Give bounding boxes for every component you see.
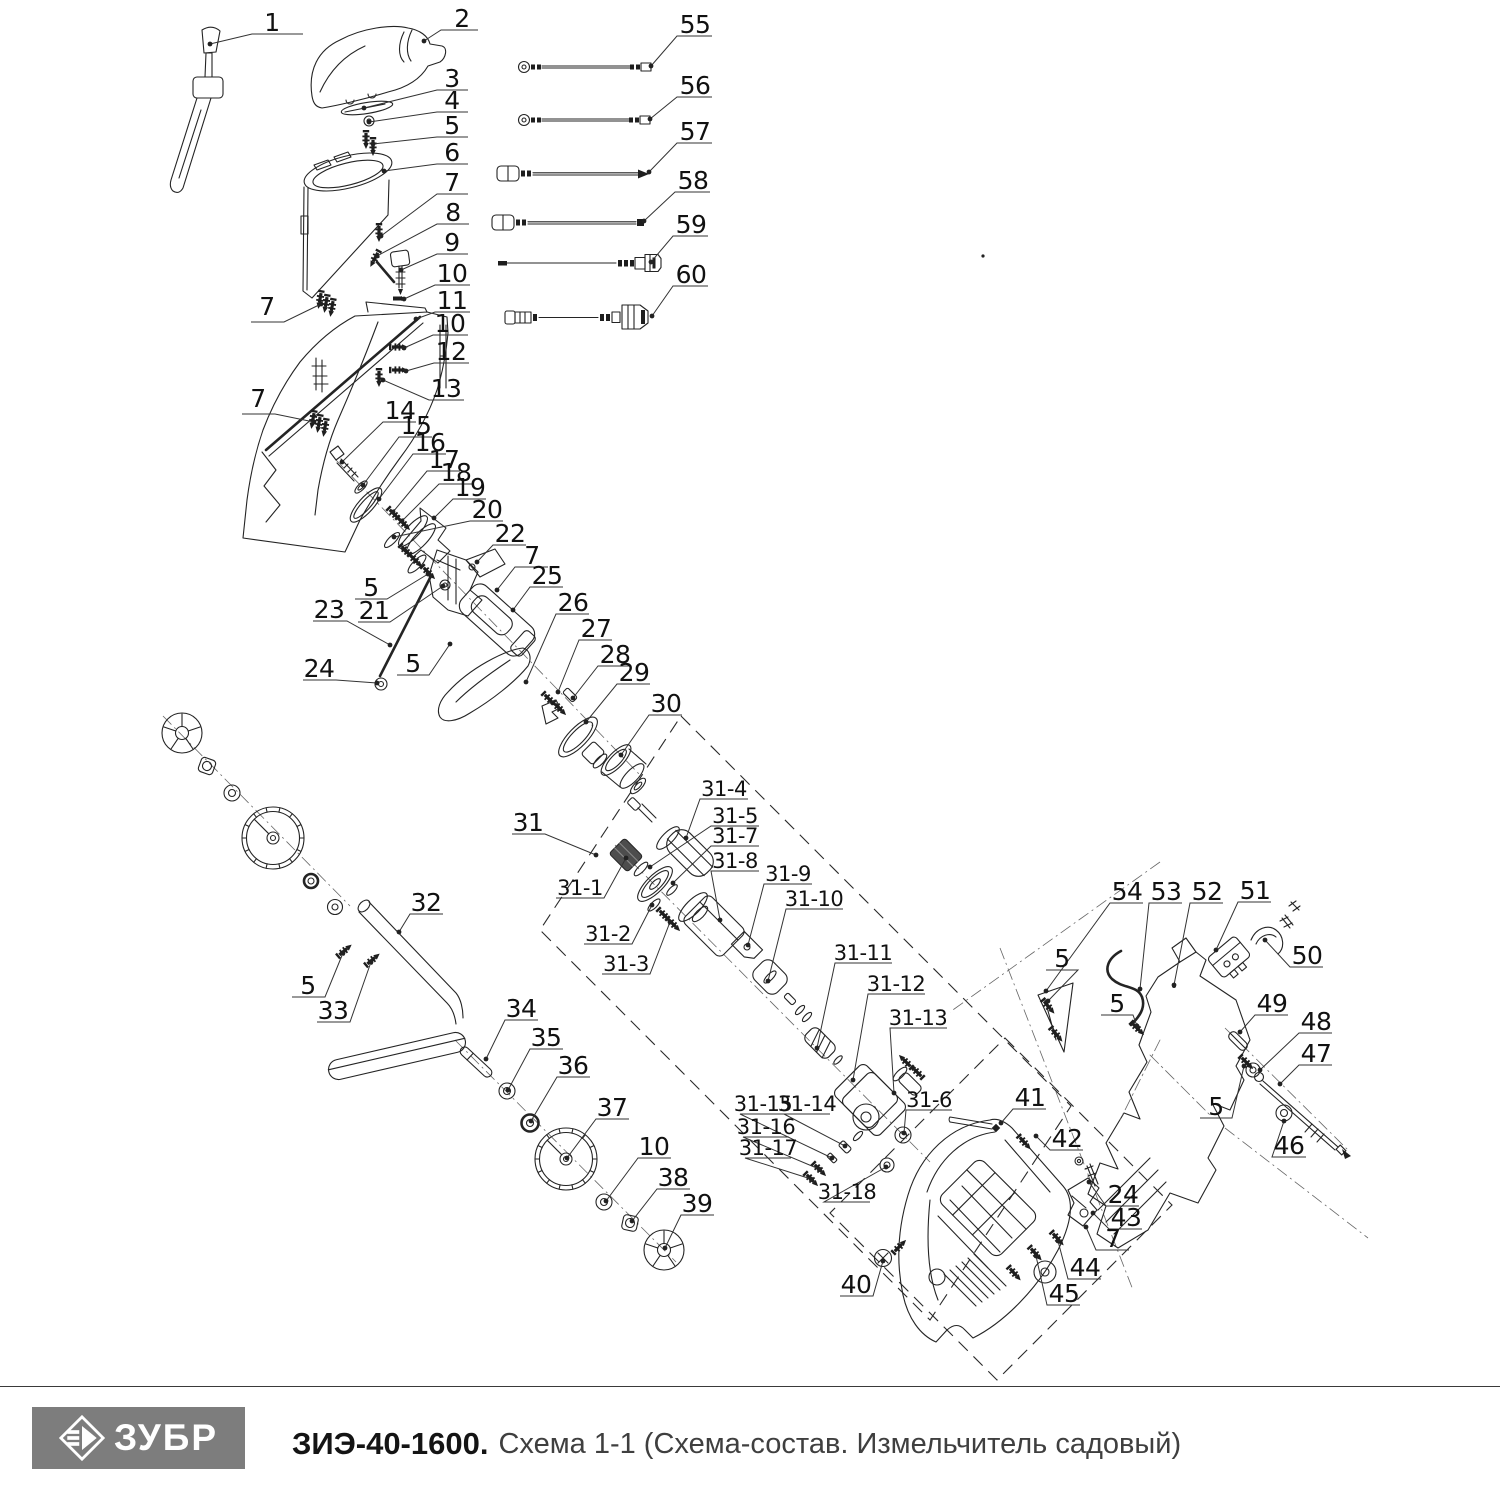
part-label-50: 50 <box>1263 938 1323 970</box>
leader-line <box>531 1077 590 1121</box>
cable-55 <box>519 62 652 73</box>
leader-line <box>904 1110 952 1133</box>
part-label-31-18: 31-18 <box>818 1165 889 1204</box>
part-number-text: 33 <box>318 996 349 1025</box>
labels-layer: 1234567891011101213775556575859601415161… <box>208 4 1332 1308</box>
cable-56 <box>519 115 651 126</box>
leader-dot <box>208 42 213 47</box>
leader-dot <box>604 1199 609 1204</box>
part-label-7: 7 <box>251 292 323 322</box>
leader-line <box>711 871 759 920</box>
leader-dot <box>565 1156 570 1161</box>
part-label-39: 39 <box>663 1189 714 1250</box>
cable-60 <box>505 305 648 329</box>
leader-dot <box>369 960 374 965</box>
part-number-text: 6 <box>444 138 459 167</box>
footer: ЗУБР ЗИЭ-40-1600. Схема 1-1 (Схема-соста… <box>0 1386 1500 1500</box>
leader-dot <box>375 681 380 686</box>
part-number-text: 30 <box>651 689 682 718</box>
part-number-text: 24 <box>304 654 335 683</box>
part-number-text: 45 <box>1049 1279 1080 1308</box>
part-number-text: 31-14 <box>778 1092 837 1116</box>
cables <box>492 62 661 330</box>
leader-dot <box>1084 1225 1089 1230</box>
leader-dot <box>663 1246 668 1251</box>
leader-dot <box>671 881 676 886</box>
leader-dot <box>506 1088 511 1093</box>
part-label-55: 55 <box>649 10 712 68</box>
part-number-text: 34 <box>506 994 537 1023</box>
leader-dot <box>448 642 453 647</box>
leader-dot <box>650 903 655 908</box>
leader-dot <box>1242 1064 1247 1069</box>
leader-dot <box>648 117 653 122</box>
leader-line <box>508 1049 563 1090</box>
leader-dot <box>382 169 387 174</box>
leader-dot <box>684 836 689 841</box>
part-label-54: 54 <box>1044 877 1143 993</box>
leader-dot <box>422 39 427 44</box>
part-number-text: 27 <box>581 614 612 643</box>
part-label-5: 5 <box>292 951 345 1000</box>
cable-59 <box>498 255 661 272</box>
leader-dot <box>475 560 480 565</box>
part-label-31-17: 31-17 <box>739 1136 814 1181</box>
part-label-31: 31 <box>512 808 598 857</box>
leader-dot <box>668 920 673 925</box>
leader-dot <box>619 753 624 758</box>
part-label-56: 56 <box>648 71 712 121</box>
leader-dot <box>881 1259 886 1264</box>
part-number-text: 5 <box>1208 1092 1223 1121</box>
part-label-31-6: 31-6 <box>902 1088 952 1135</box>
part-number-text: 31 <box>513 808 544 837</box>
leader-dot <box>642 219 647 224</box>
part-label-36: 36 <box>529 1051 590 1123</box>
leader-dot <box>367 120 372 125</box>
leader-dot <box>999 1121 1004 1126</box>
part-number-text: 44 <box>1070 1253 1101 1282</box>
part-number-text: 21 <box>359 596 390 625</box>
leader-dot <box>902 1131 907 1136</box>
part-number-text: 31-13 <box>889 1006 948 1030</box>
leader-dot <box>341 951 346 956</box>
leader-dot <box>571 696 576 701</box>
part-number-text: 29 <box>619 658 650 687</box>
motor-assembly-boundary <box>540 716 1071 1320</box>
part-label-41: 41 <box>999 1083 1046 1125</box>
leader-dot <box>1263 938 1268 943</box>
part-label-30: 30 <box>619 689 682 757</box>
part-number-text: 47 <box>1301 1039 1332 1068</box>
leader-dot <box>884 1165 889 1170</box>
leader-dot <box>718 918 723 923</box>
leader-dot <box>1046 999 1051 1004</box>
leader-line <box>621 715 682 755</box>
part-number-text: 46 <box>1274 1131 1305 1160</box>
part-number-text: 32 <box>411 888 442 917</box>
doc-title: ЗИЭ-40-1600. Схема 1-1 (Схема-состав. Из… <box>292 1387 1181 1500</box>
print-speck <box>981 254 984 257</box>
leader-dot <box>362 106 367 111</box>
part-label-46: 46 <box>1272 1119 1306 1160</box>
part-number-text: 50 <box>1292 941 1323 970</box>
leader-dot <box>851 1078 856 1083</box>
part-number-text: 12 <box>436 337 467 366</box>
part-number-text: 52 <box>1192 877 1223 906</box>
part-label-31-2: 31-2 <box>584 903 654 946</box>
leader-dot <box>649 260 654 265</box>
leader-dot <box>630 1219 635 1224</box>
leader-dot <box>1056 1239 1061 1244</box>
part-number-text: 56 <box>680 71 711 100</box>
part-number-text: 54 <box>1112 877 1143 906</box>
leader-dot <box>830 1156 835 1161</box>
part-number-text: 31-6 <box>906 1088 952 1112</box>
part-number-text: 22 <box>495 519 526 548</box>
funnel-screws <box>367 223 410 301</box>
leader-dot <box>649 64 654 69</box>
logo-text: ЗУБР <box>114 1417 218 1459</box>
leader-dot <box>529 1119 534 1124</box>
leader-dot <box>594 853 599 858</box>
part-label-2: 2 <box>422 4 478 43</box>
wheel-set-upper <box>162 713 343 915</box>
leader-dot <box>556 690 561 695</box>
leader-dot <box>511 608 516 613</box>
part-number-text: 31-11 <box>834 941 893 965</box>
part-label-12: 12 <box>404 337 469 373</box>
screws-7-upper <box>315 290 337 318</box>
part-label-31-13: 31-13 <box>889 1006 948 1095</box>
part-number-text: 10 <box>437 259 468 288</box>
leader-dot <box>1282 1119 1287 1124</box>
part-number-text: 37 <box>597 1093 628 1122</box>
leader-line <box>513 587 563 610</box>
part-label-31-10: 31-10 <box>766 887 844 983</box>
part-label-42: 42 <box>1034 1124 1083 1153</box>
leader-dot <box>766 979 771 984</box>
leader-line <box>1174 903 1223 985</box>
part-number-text: 23 <box>314 595 345 624</box>
part-funnel <box>300 146 410 301</box>
leader-line <box>210 34 303 44</box>
leader-dot <box>340 460 345 465</box>
leader-dot <box>809 1177 814 1182</box>
leader-dot <box>1278 1082 1283 1087</box>
group-boundaries <box>540 716 1368 1380</box>
part-label-5: 5 <box>397 642 452 678</box>
leader-dot <box>402 297 407 302</box>
part-pusher <box>170 27 223 192</box>
part-label-60: 60 <box>650 260 708 318</box>
part-number-text: 31-7 <box>712 824 758 848</box>
part-label-7: 7 <box>242 384 316 424</box>
leader-dot <box>624 856 629 861</box>
leader-line <box>652 286 708 316</box>
leader-dot <box>426 572 431 577</box>
part-number-text: 41 <box>1015 1083 1046 1112</box>
leader-dot <box>1091 1211 1096 1216</box>
part-number-text: 48 <box>1301 1007 1332 1036</box>
leader-dot <box>1034 1254 1039 1259</box>
part-number-text: 36 <box>558 1051 589 1080</box>
part-number-text: 38 <box>658 1163 689 1192</box>
part-top-cover <box>311 27 445 109</box>
leader-dot <box>388 643 393 648</box>
part-label-32: 32 <box>397 888 443 934</box>
part-number-text: 5 <box>405 649 420 678</box>
part-number-text: 5 <box>1054 944 1069 973</box>
part-number-text: 40 <box>841 1270 872 1299</box>
leader-line <box>512 834 596 855</box>
part-number-text: 31-2 <box>585 922 631 946</box>
cable-58 <box>492 215 644 230</box>
part-number-text: 31-10 <box>785 887 844 911</box>
leader-dot <box>381 378 386 383</box>
part-number-text: 53 <box>1151 877 1182 906</box>
part-number-text: 25 <box>532 561 563 590</box>
doc-subtitle: Схема 1-1 (Схема-состав. Измельчитель са… <box>498 1428 1181 1461</box>
leader-line <box>567 1119 629 1158</box>
part-number-text: 49 <box>1257 989 1288 1018</box>
leader-dot <box>441 584 446 589</box>
leader-line <box>651 36 712 66</box>
leader-dot <box>432 516 437 521</box>
part-number-text: 31-8 <box>712 849 758 873</box>
schematic-page: 1234567891011101213775556575859601415161… <box>0 0 1500 1500</box>
part-number-text: 10 <box>435 309 466 338</box>
part-number-text: 26 <box>558 588 589 617</box>
part-number-text: 7 <box>1105 1224 1120 1253</box>
part-label-1: 1 <box>208 8 303 46</box>
part-number-text: 58 <box>678 166 709 195</box>
leader-dot <box>319 302 324 307</box>
leader-dot <box>1172 983 1177 988</box>
part-number-text: 31-18 <box>818 1180 877 1204</box>
leader-dot <box>495 588 500 593</box>
leader-dot <box>371 142 376 147</box>
leader-line <box>1216 902 1271 950</box>
leader-dot <box>1087 1180 1092 1185</box>
exploded-parts-diagram: 1234567891011101213775556575859601415161… <box>0 0 1500 1386</box>
leader-dot <box>1135 1024 1140 1029</box>
leader-dot <box>484 1057 489 1062</box>
part-number-text: 5 <box>1109 989 1124 1018</box>
part-label-20: 20 <box>392 495 503 539</box>
part-label-59: 59 <box>649 210 708 264</box>
leader-dot <box>361 483 366 488</box>
leader-dot <box>1138 987 1143 992</box>
leader-dot <box>815 1046 820 1051</box>
part-number-text: 31-17 <box>739 1136 798 1160</box>
part-number-text: 51 <box>1240 876 1271 905</box>
leader-line <box>526 614 589 682</box>
part-label-33: 33 <box>317 960 373 1025</box>
part-number-text: 1 <box>264 8 279 37</box>
zubr-logo: ЗУБР <box>32 1407 245 1469</box>
part-label-24: 24 <box>303 654 379 685</box>
leader-dot <box>312 420 317 425</box>
part-number-text: 5 <box>300 971 315 1000</box>
part-number-text: 7 <box>250 384 265 413</box>
part-number-text: 31-4 <box>701 777 747 801</box>
part-number-text: 55 <box>680 10 711 39</box>
leader-dot <box>524 680 529 685</box>
part-number-text: 7 <box>259 292 274 321</box>
part-number-text: 31-12 <box>867 972 926 996</box>
part-label-26: 26 <box>524 588 589 684</box>
part-number-text: 31-1 <box>557 876 603 900</box>
leader-dot <box>1258 1068 1263 1073</box>
leader-dot <box>399 268 404 273</box>
part-number-text: 10 <box>639 1132 670 1161</box>
leader-dot <box>892 1091 897 1096</box>
leader-dot <box>379 234 384 239</box>
leader-dot <box>375 254 380 259</box>
leader-dot <box>402 346 407 351</box>
leader-dot <box>647 170 652 175</box>
part-number-text: 31-9 <box>765 862 811 886</box>
leader-dot <box>843 1144 848 1149</box>
part-number-text: 39 <box>682 1189 713 1218</box>
leader-dot <box>400 519 405 524</box>
zubr-diamond-icon <box>59 1415 105 1461</box>
part-number-text: 42 <box>1052 1124 1083 1153</box>
leader-line <box>768 909 843 981</box>
model-number: ЗИЭ-40-1600. <box>292 1426 488 1462</box>
leader-line <box>424 30 478 41</box>
part-label-25: 25 <box>511 561 563 612</box>
leader-dot <box>584 720 589 725</box>
part-number-text: 59 <box>676 210 707 239</box>
leader-dot <box>817 1167 822 1172</box>
part-number-text: 8 <box>445 198 460 227</box>
part-number-text: 13 <box>431 374 462 403</box>
leader-line <box>586 684 650 722</box>
leader-dot <box>746 943 751 948</box>
leader-line <box>651 236 708 262</box>
leader-dot <box>397 930 402 935</box>
leader-dot <box>648 865 653 870</box>
leader-dot <box>391 510 396 515</box>
part-number-text: 57 <box>680 117 711 146</box>
leader-dot <box>1238 1030 1243 1035</box>
leader-dot <box>404 369 409 374</box>
part-label-31-8: 31-8 <box>711 849 759 922</box>
part-number-text: 2 <box>454 4 469 33</box>
part-number-text: 5 <box>444 111 459 140</box>
leader-dot <box>1034 1134 1039 1139</box>
part-number-text: 60 <box>676 260 707 289</box>
leader-dot <box>392 535 397 540</box>
part-number-text: 31-3 <box>603 952 649 976</box>
part-number-text: 7 <box>444 168 459 197</box>
screws-7-lower <box>308 410 330 438</box>
part-number-text: 35 <box>531 1023 562 1052</box>
part-number-text: 9 <box>444 228 459 257</box>
leader-dot <box>414 317 419 322</box>
leader-dot <box>377 497 382 502</box>
cable-57 <box>497 166 649 181</box>
part-label-53: 53 <box>1138 877 1182 991</box>
leader-dot <box>1044 989 1049 994</box>
leader-dot <box>1214 948 1219 953</box>
leader-line <box>650 97 712 119</box>
leg-frame <box>327 898 468 1082</box>
part-label-37: 37 <box>565 1093 629 1160</box>
leader-dot <box>650 314 655 319</box>
